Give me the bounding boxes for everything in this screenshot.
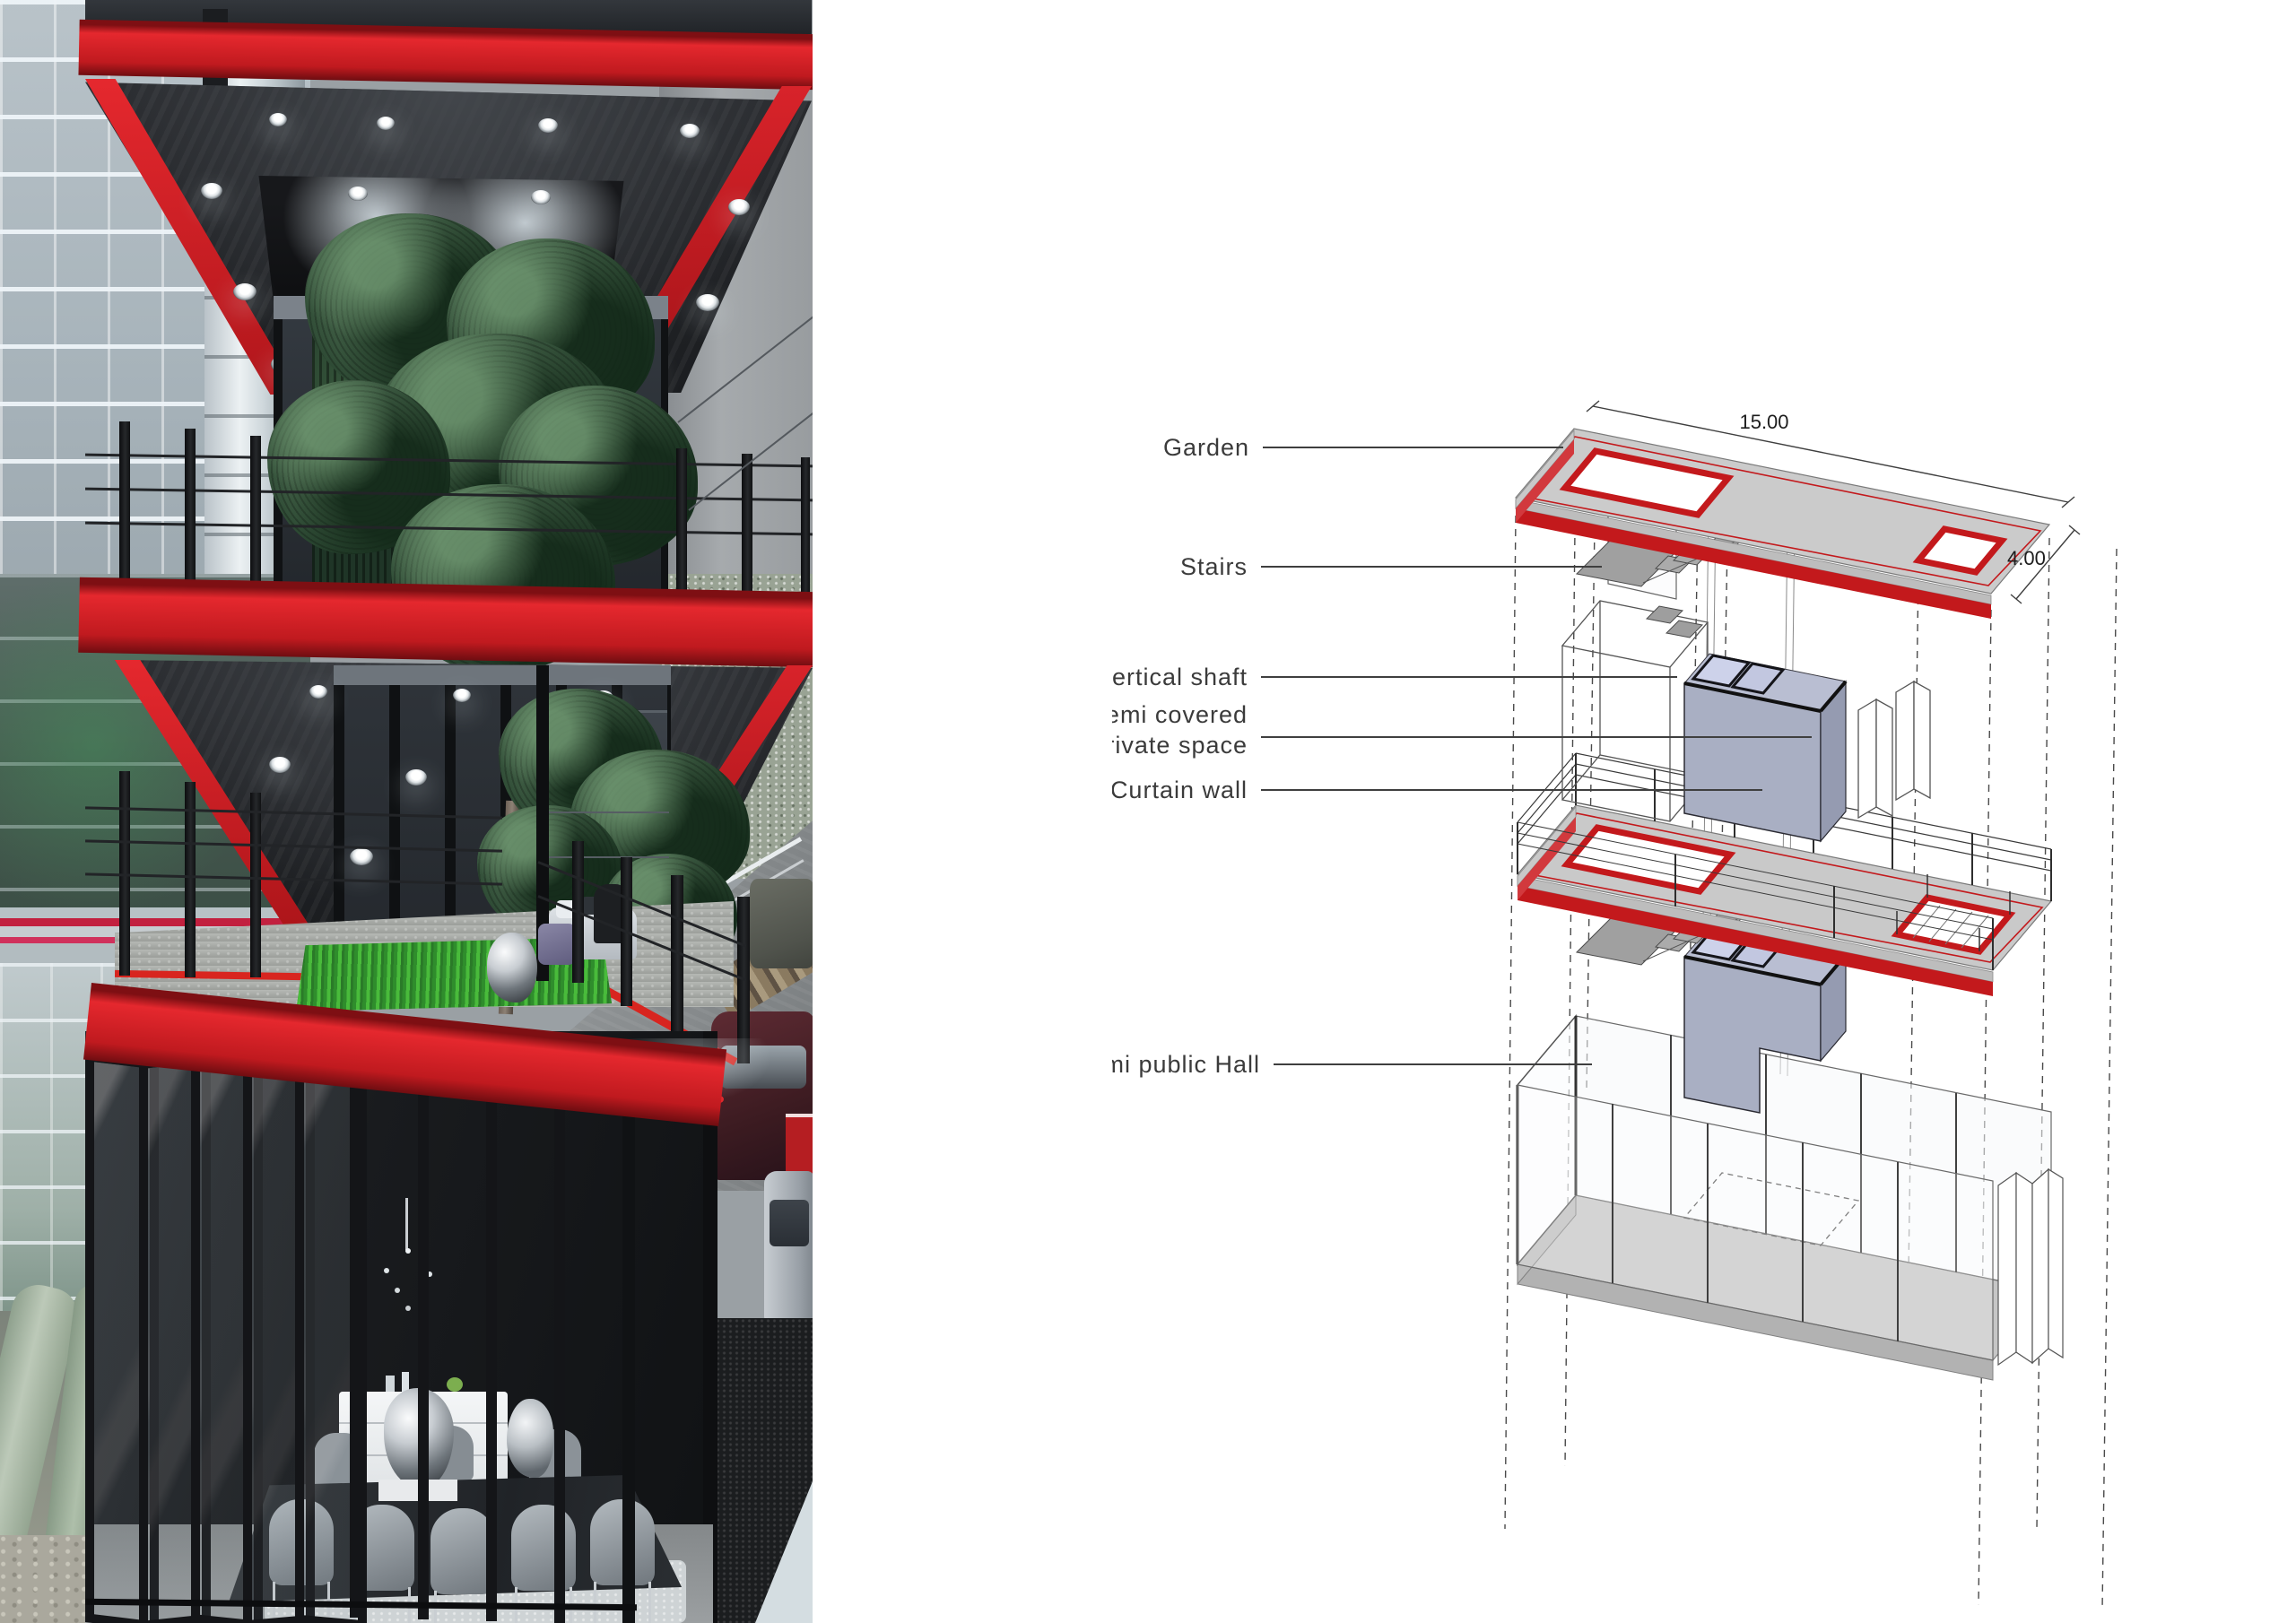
downlight <box>201 183 222 199</box>
chrome-sculpture-small <box>507 1399 553 1478</box>
label-semi-covered-1: semi covered <box>1112 701 1248 728</box>
label-curtain-wall: Curtain wall <box>1112 777 1248 803</box>
purple-throw <box>538 924 576 965</box>
downlight <box>233 283 257 300</box>
downlight <box>680 124 700 138</box>
red-slab-band-2 <box>78 577 813 668</box>
label-garden: Garden <box>1163 434 1249 461</box>
label-semi-public-hall: Semi public Hall <box>1112 1051 1260 1078</box>
door-mullion <box>622 1074 635 1623</box>
downlight <box>269 757 291 773</box>
chrome-sculpture-terrace <box>487 933 537 1002</box>
silver-car-windshield <box>770 1200 809 1246</box>
door-mullion <box>486 1067 497 1621</box>
sideboard-glassware <box>386 1376 395 1392</box>
building-render-photo <box>0 0 813 1623</box>
glass-reflection-rail <box>549 811 669 813</box>
curtain-wall-panels <box>1858 681 1930 818</box>
downlight <box>309 685 327 699</box>
railing-post <box>250 793 261 977</box>
railing-post <box>250 436 261 597</box>
dining-chair <box>511 1505 576 1591</box>
downlight <box>348 187 368 201</box>
railing-post <box>801 457 810 604</box>
exploded-axon-diagram: 15.00 4.00 Garden Stairs vertical shaft … <box>1112 386 2188 1623</box>
door-mullion <box>350 1060 361 1618</box>
railing-post <box>119 421 130 594</box>
downlight <box>350 848 373 865</box>
silver-car <box>764 1171 813 1322</box>
glass-reflection-rail <box>549 856 669 858</box>
downlight <box>538 118 558 133</box>
label-semi-covered-2: private space <box>1112 732 1248 759</box>
sideboard-plant <box>447 1377 463 1392</box>
presentation-board: 15.00 4.00 Garden Stairs vertical shaft … <box>0 0 2296 1623</box>
downlight <box>405 769 427 785</box>
dimension-length-text: 15.00 <box>1739 411 1788 433</box>
dimension-depth-text: 4.00 <box>2007 547 2046 569</box>
chandelier-bulbs <box>405 1248 411 1254</box>
label-vertical-shaft: vertical shaft <box>1112 664 1248 690</box>
downlight <box>531 190 551 204</box>
railing-post <box>676 448 687 601</box>
downlight <box>377 117 395 130</box>
railing-post <box>742 454 752 604</box>
rock-outcrop <box>750 879 813 968</box>
downlight <box>269 113 287 126</box>
door-mullion <box>554 1071 565 1623</box>
private-space-volume <box>1684 654 1846 841</box>
downlight <box>453 689 471 702</box>
garden-slab <box>1516 429 2049 619</box>
door-mullion <box>418 1063 429 1619</box>
label-stairs: Stairs <box>1180 553 1248 580</box>
downlight <box>696 294 719 311</box>
railing-post <box>185 429 196 595</box>
downlight <box>728 199 750 215</box>
chandelier <box>405 1198 408 1250</box>
